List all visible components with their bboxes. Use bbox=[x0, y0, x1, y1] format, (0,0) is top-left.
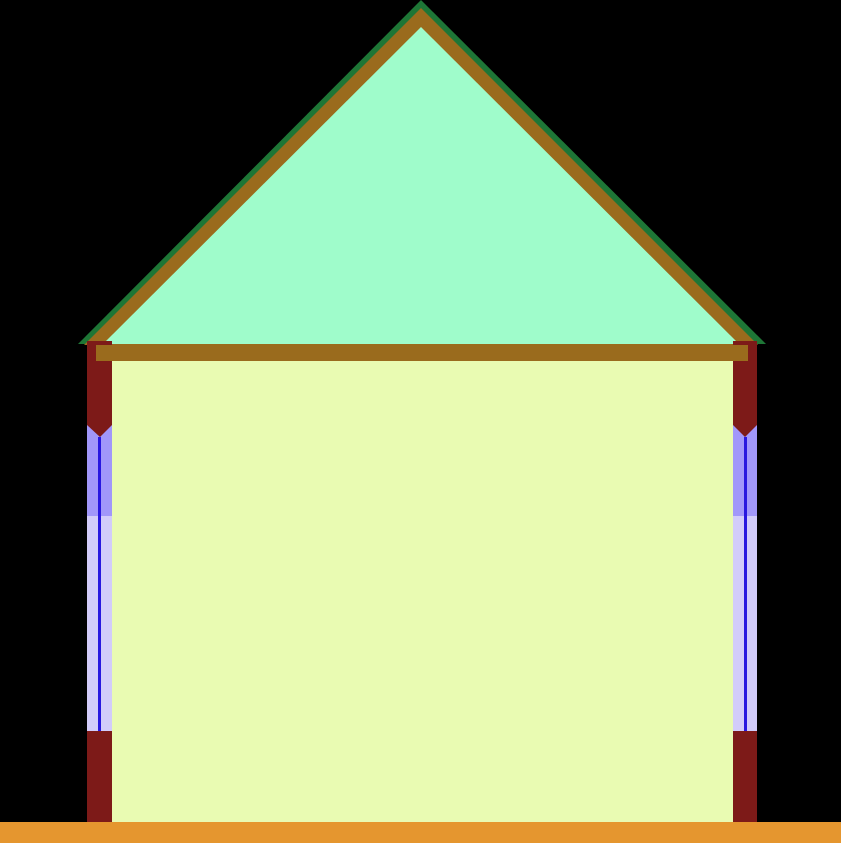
house-interior bbox=[112, 350, 733, 822]
left-window-mullion bbox=[98, 437, 101, 731]
diagram-canvas bbox=[0, 0, 841, 843]
right-window-mullion bbox=[744, 437, 747, 731]
ceiling-joist bbox=[96, 345, 748, 361]
house-cross-section-diagram bbox=[0, 0, 841, 843]
ground-strip bbox=[0, 822, 841, 843]
